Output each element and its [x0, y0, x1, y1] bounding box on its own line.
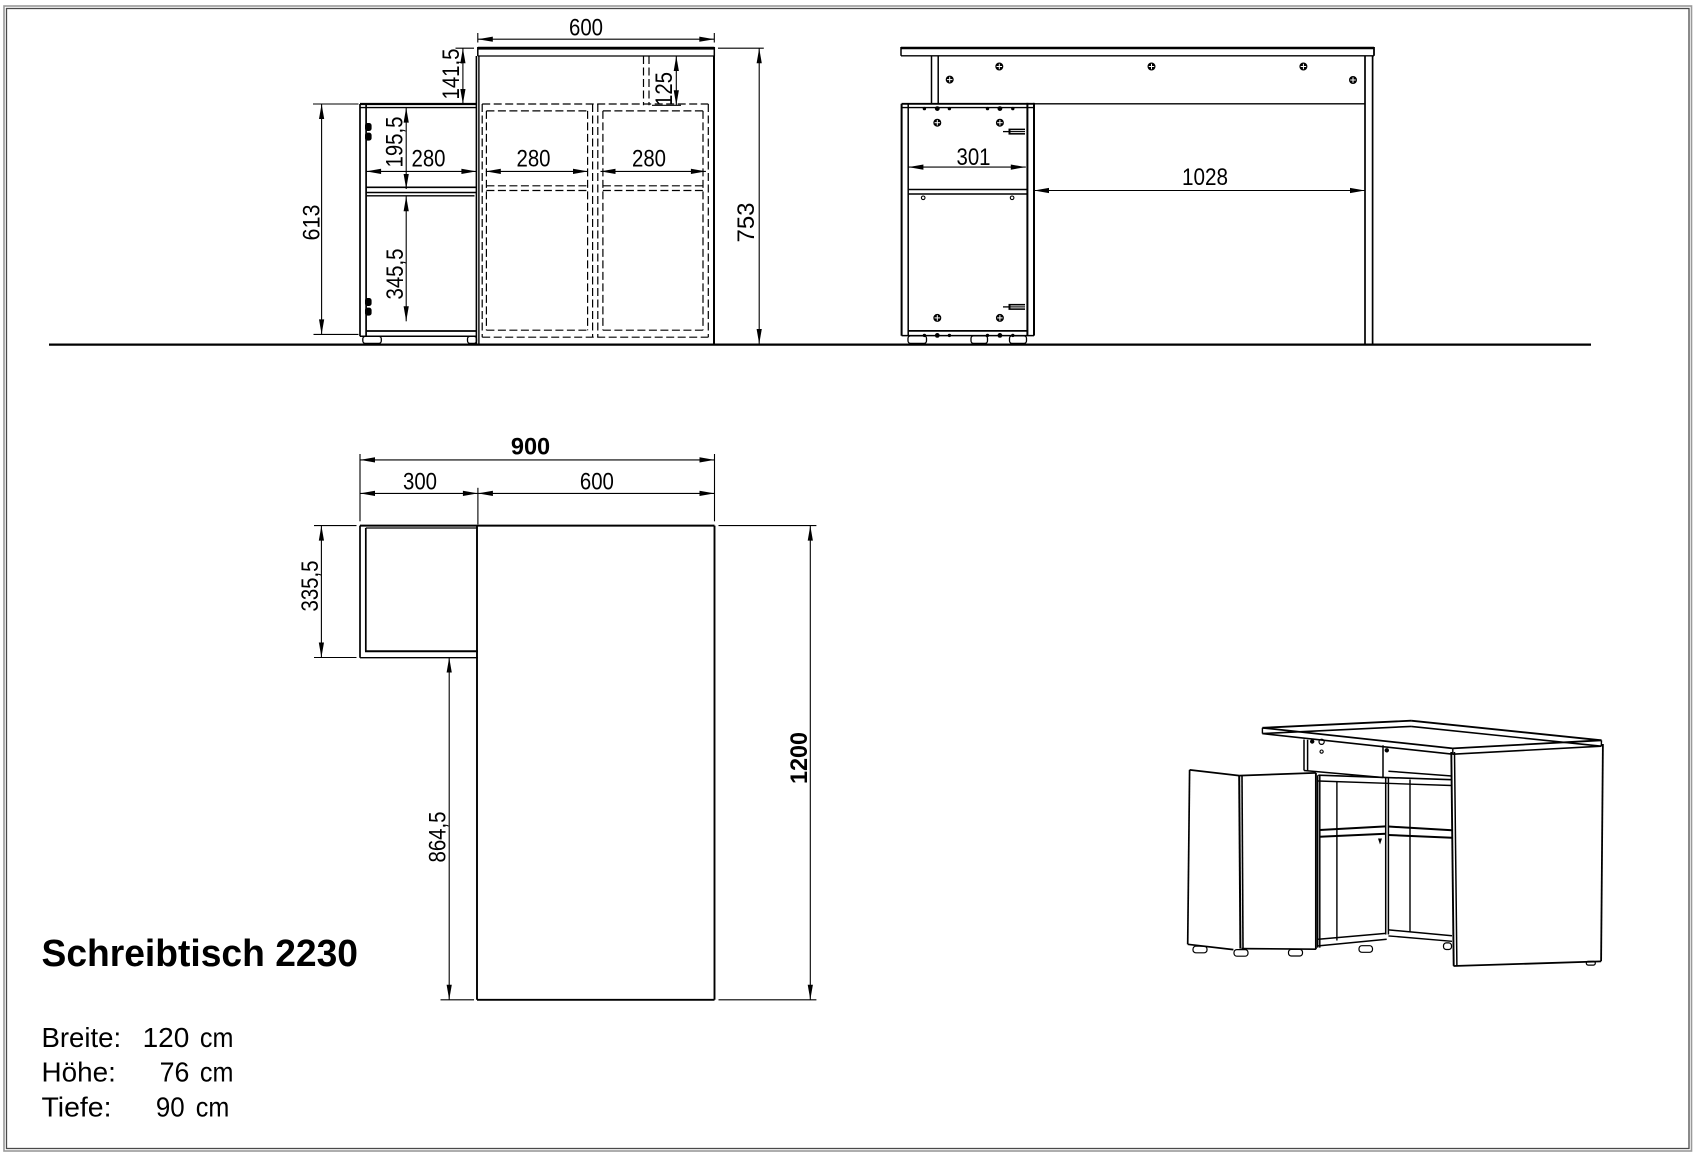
- svg-text:1200: 1200: [786, 732, 813, 784]
- svg-text:280: 280: [412, 145, 446, 172]
- svg-text:613: 613: [299, 205, 326, 241]
- svg-text:345,5: 345,5: [382, 249, 409, 300]
- svg-text:600: 600: [580, 469, 614, 496]
- svg-text:900: 900: [511, 433, 550, 460]
- svg-text:1028: 1028: [1182, 164, 1228, 191]
- svg-text:195,5: 195,5: [382, 117, 409, 168]
- svg-text:120: 120: [143, 1021, 190, 1053]
- svg-text:753: 753: [733, 203, 760, 243]
- svg-text:Breite:: Breite:: [42, 1021, 122, 1053]
- svg-text:280: 280: [632, 145, 666, 172]
- svg-text:90: 90: [156, 1090, 185, 1122]
- svg-text:Höhe:: Höhe:: [42, 1056, 116, 1088]
- svg-text:300: 300: [403, 469, 437, 496]
- svg-text:600: 600: [569, 15, 603, 42]
- svg-text:864,5: 864,5: [425, 812, 452, 863]
- svg-text:cm: cm: [196, 1090, 230, 1122]
- svg-text:cm: cm: [200, 1021, 234, 1053]
- svg-text:335,5: 335,5: [297, 561, 324, 612]
- svg-text:141,5: 141,5: [438, 49, 465, 100]
- svg-text:280: 280: [517, 145, 551, 172]
- svg-text:301: 301: [957, 144, 991, 171]
- svg-text:Tiefe:: Tiefe:: [42, 1090, 112, 1122]
- svg-text:76: 76: [160, 1056, 190, 1088]
- svg-text:Schreibtisch 2230: Schreibtisch 2230: [42, 933, 359, 975]
- svg-text:cm: cm: [200, 1056, 234, 1088]
- svg-text:125: 125: [651, 72, 678, 106]
